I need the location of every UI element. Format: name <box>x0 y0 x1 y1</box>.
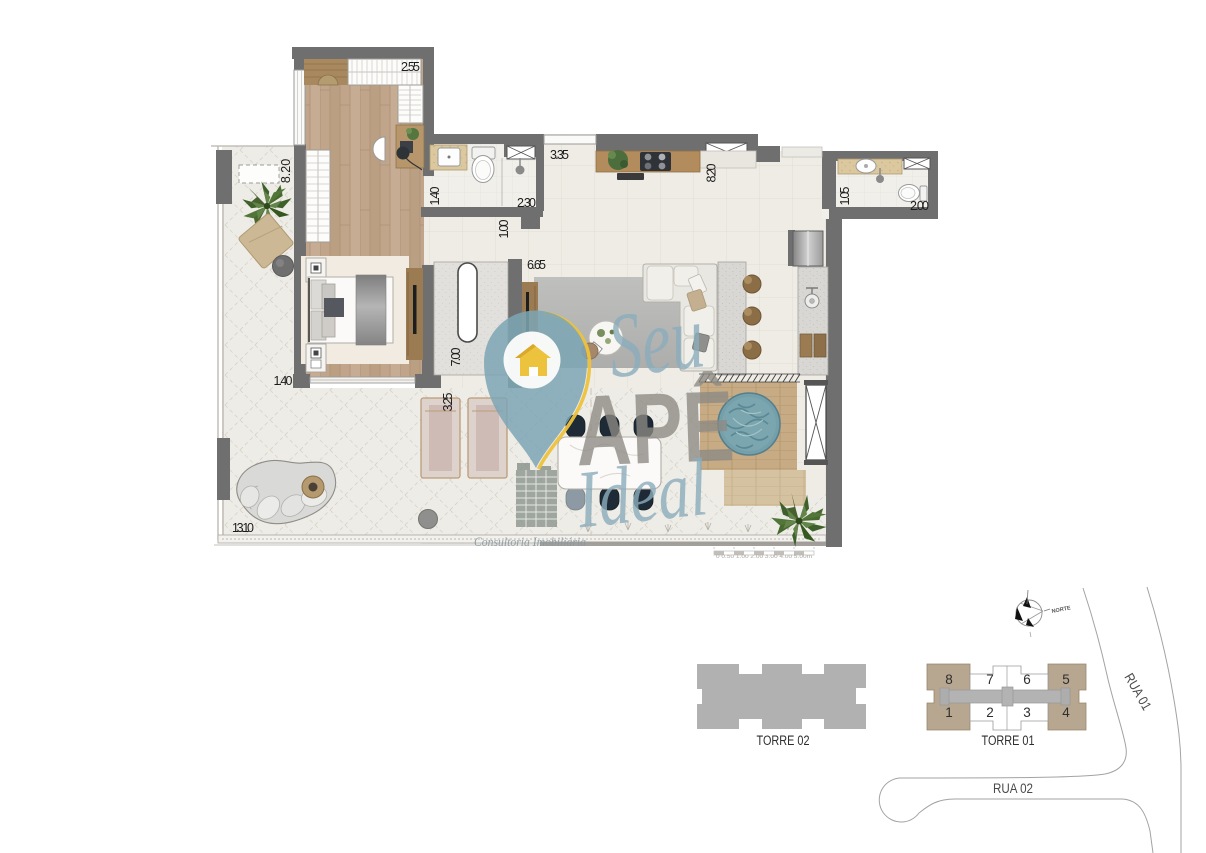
svg-text:1.05: 1.05 <box>838 186 852 205</box>
svg-text:7: 7 <box>986 672 994 687</box>
svg-text:3.35: 3.35 <box>550 148 569 162</box>
svg-text:6: 6 <box>1023 672 1031 687</box>
svg-text:TORRE 02: TORRE 02 <box>757 733 810 748</box>
svg-text:1.40: 1.40 <box>274 374 293 388</box>
svg-text:NORTE: NORTE <box>1051 605 1071 615</box>
svg-text:4: 4 <box>1062 705 1070 720</box>
svg-text:8.20: 8.20 <box>279 159 293 183</box>
svg-text:2: 2 <box>986 705 994 720</box>
svg-text:TORRE 01: TORRE 01 <box>982 733 1035 748</box>
svg-text:RUA 01: RUA 01 <box>1121 671 1154 713</box>
svg-text:7.00: 7.00 <box>449 347 463 366</box>
svg-text:Ideal: Ideal <box>572 441 712 545</box>
svg-text:2.00: 2.00 <box>910 199 929 213</box>
svg-text:3.25: 3.25 <box>441 392 455 411</box>
svg-text:3: 3 <box>1023 705 1031 720</box>
svg-text:1: 1 <box>945 705 953 720</box>
svg-text:8: 8 <box>945 672 953 687</box>
svg-text:1.40: 1.40 <box>428 186 442 205</box>
svg-text:Consultoria Imobiliária: Consultoria Imobiliária <box>474 534 586 549</box>
svg-text:8.20: 8.20 <box>704 163 718 182</box>
svg-text:2.55: 2.55 <box>401 60 420 74</box>
svg-text:1.00: 1.00 <box>497 219 511 238</box>
svg-text:RUA 02: RUA 02 <box>993 781 1033 796</box>
svg-text:6.65: 6.65 <box>527 258 546 272</box>
svg-text:2.30: 2.30 <box>517 196 536 210</box>
svg-text:13.10: 13.10 <box>232 521 254 535</box>
svg-text:5: 5 <box>1062 672 1070 687</box>
